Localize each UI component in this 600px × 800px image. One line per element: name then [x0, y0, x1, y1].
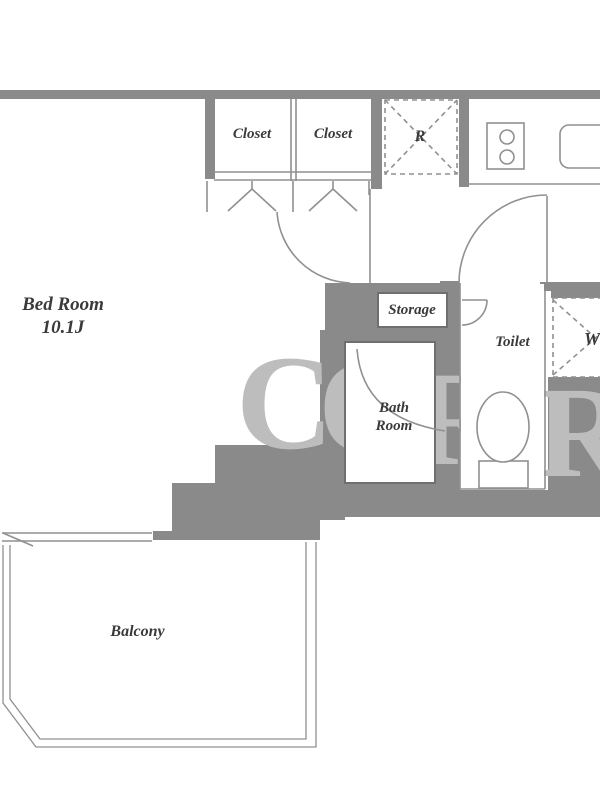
entrance-door-arc	[459, 195, 547, 283]
storage-label: Storage	[380, 301, 444, 319]
closet-left-label: Closet	[222, 125, 282, 143]
window-opening-tick	[3, 533, 33, 546]
balcony-label: Balcony	[95, 622, 180, 641]
bedroom-name: Bed Room	[10, 294, 116, 317]
line-layer	[0, 0, 600, 800]
closet-left-folding-door	[228, 181, 276, 211]
bathroom-label: Bath Room	[362, 399, 426, 435]
kitchen-sink	[560, 125, 600, 168]
washer-label: W	[584, 329, 600, 351]
bedroom-label: Bed Room 10.1J	[10, 294, 116, 340]
bedroom-door-arc	[277, 212, 350, 283]
refrigerator-label: R	[406, 127, 434, 146]
toilet-bowl	[477, 392, 529, 462]
closet-divider-wall	[291, 99, 296, 181]
toilet-label: Toilet	[480, 333, 545, 351]
closet-right-label: Closet	[303, 125, 363, 143]
closet-front-edge	[214, 172, 371, 180]
closet-right-folding-door	[309, 181, 357, 211]
bedroom-window	[2, 533, 152, 541]
floor-plan: C O R R	[0, 0, 600, 800]
balcony-outer-rail	[3, 542, 316, 747]
toilet-tank	[479, 461, 528, 488]
bedroom-size: 10.1J	[10, 317, 116, 340]
